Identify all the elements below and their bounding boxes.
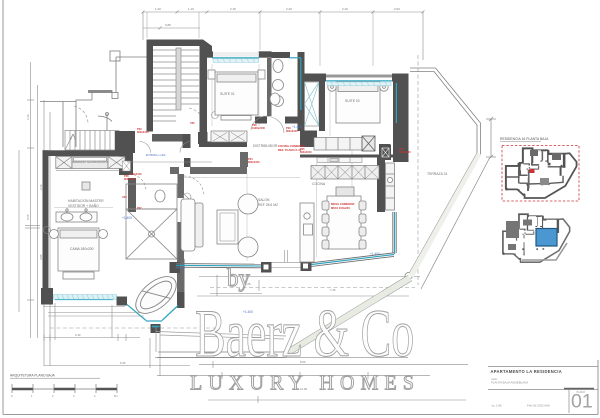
svg-text:RESIDENCIA 16 PLANTA BAJA: RESIDENCIA 16 PLANTA BAJA [500, 137, 549, 141]
svg-text:CAMA 180x200: CAMA 180x200 [70, 247, 94, 251]
svg-text:01: 01 [571, 391, 593, 413]
svg-text:PLANTA BAJA AMUEBLADA: PLANTA BAJA AMUEBLADA [491, 381, 528, 385]
svg-text:800x2100: 800x2100 [124, 177, 136, 181]
svg-text:by: by [227, 265, 250, 292]
svg-text:800x2100: 800x2100 [399, 150, 411, 154]
svg-text:+1.400: +1.400 [122, 216, 132, 220]
svg-text:2.15: 2.15 [230, 7, 236, 11]
svg-text:REF 28.6 M2: REF 28.6 M2 [258, 203, 278, 207]
svg-text:SUITE 02: SUITE 02 [345, 99, 360, 103]
svg-text:VESTIDOR + BAÑO: VESTIDOR + BAÑO [68, 203, 99, 208]
svg-text:2.20: 2.20 [39, 184, 43, 190]
svg-text:1.20: 1.20 [155, 7, 161, 11]
svg-text:+1.400: +1.400 [292, 125, 302, 129]
svg-text:2.10: 2.10 [342, 7, 348, 11]
svg-text:ARMARIO GUARDAROPA: ARMARIO GUARDAROPA [72, 160, 108, 164]
svg-text:1.10: 1.10 [188, 7, 194, 11]
svg-text:0.80: 0.80 [165, 23, 171, 27]
svg-text:2.00: 2.00 [394, 7, 400, 11]
svg-text:LUXURY HOMES: LUXURY HOMES [190, 372, 420, 395]
svg-text:3: 3 [73, 394, 75, 398]
svg-text:SUITE 01: SUITE 01 [220, 92, 235, 96]
svg-text:DISTRIBUIDOR: DISTRIBUIDOR [253, 144, 278, 148]
svg-text:3.85: 3.85 [39, 254, 43, 260]
svg-text:5.05: 5.05 [26, 214, 30, 220]
svg-text:SALON: SALON [258, 198, 270, 202]
svg-text:2.40: 2.40 [286, 7, 292, 11]
svg-text:+1.400: +1.400 [370, 252, 380, 256]
svg-text:REF. PLANO A-10: REF. PLANO A-10 [278, 148, 302, 152]
svg-text:1: 1 [31, 394, 33, 398]
svg-text:800x2100: 800x2100 [248, 160, 260, 164]
svg-text:3.10: 3.10 [26, 114, 30, 120]
svg-text:APARTAMENTO LA RESIDENCIA: APARTAMENTO LA RESIDENCIA [491, 369, 562, 374]
svg-text:+1.400: +1.400 [175, 266, 185, 270]
svg-text:Baerz & Co: Baerz & Co [195, 295, 414, 371]
svg-text:2: 2 [52, 394, 54, 398]
svg-text:ENTRADA +1.400: ENTRADA +1.400 [146, 154, 166, 157]
svg-text:P07: P07 [137, 206, 142, 210]
svg-text:V05: V05 [190, 121, 195, 125]
svg-text:5m: 5m [114, 394, 118, 398]
svg-text:800x2100: 800x2100 [300, 150, 312, 154]
svg-text:TERRAZA 31: TERRAZA 31 [427, 172, 447, 176]
svg-text:sc: 1:85: sc: 1:85 [492, 404, 503, 408]
svg-text:COCINA: COCINA [312, 182, 326, 186]
svg-text:6.35: 6.35 [120, 361, 126, 365]
svg-text:1900x2100: 1900x2100 [252, 126, 266, 130]
svg-text:800x2100: 800x2100 [137, 130, 149, 134]
svg-text:800x2100: 800x2100 [286, 129, 298, 133]
svg-text:V02: V02 [122, 195, 127, 199]
svg-text:8PAX 100x240: 8PAX 100x240 [331, 206, 350, 210]
svg-text:0: 0 [11, 394, 13, 398]
svg-text:4: 4 [94, 394, 96, 398]
svg-text:7.45: 7.45 [330, 288, 336, 292]
svg-text:ARQUITETURA PLANO BAJA: ARQUITETURA PLANO BAJA [10, 374, 56, 378]
svg-text:2.40: 2.40 [75, 333, 81, 337]
svg-text:Feb-01-2022 AAA: Feb-01-2022 AAA [527, 404, 550, 408]
svg-text:900x2100: 900x2100 [130, 172, 142, 176]
svg-text:HABITACION MASTER: HABITACION MASTER [68, 199, 104, 203]
